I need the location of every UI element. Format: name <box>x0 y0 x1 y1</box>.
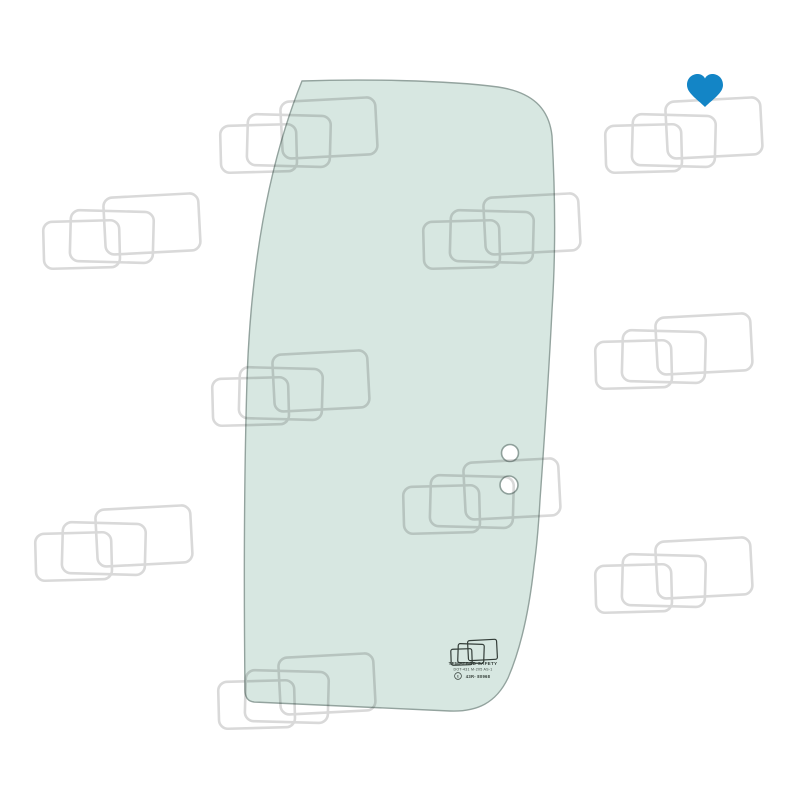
watermark-cluster <box>403 458 561 534</box>
watermark-pattern-layer <box>0 0 800 800</box>
product-image-canvas: TEMPERED SAFETY DOT-431 M-205 AS-1 E 43R… <box>0 0 800 800</box>
watermark-cluster <box>595 537 753 613</box>
watermark-cluster <box>595 313 753 389</box>
watermark-cluster <box>43 193 201 269</box>
watermark-cluster <box>220 97 378 173</box>
watermark-cluster <box>212 350 370 426</box>
watermark-cluster <box>423 193 581 269</box>
watermark-cluster <box>35 505 193 581</box>
watermark-cluster <box>218 653 376 729</box>
watermark-cluster <box>605 97 763 173</box>
